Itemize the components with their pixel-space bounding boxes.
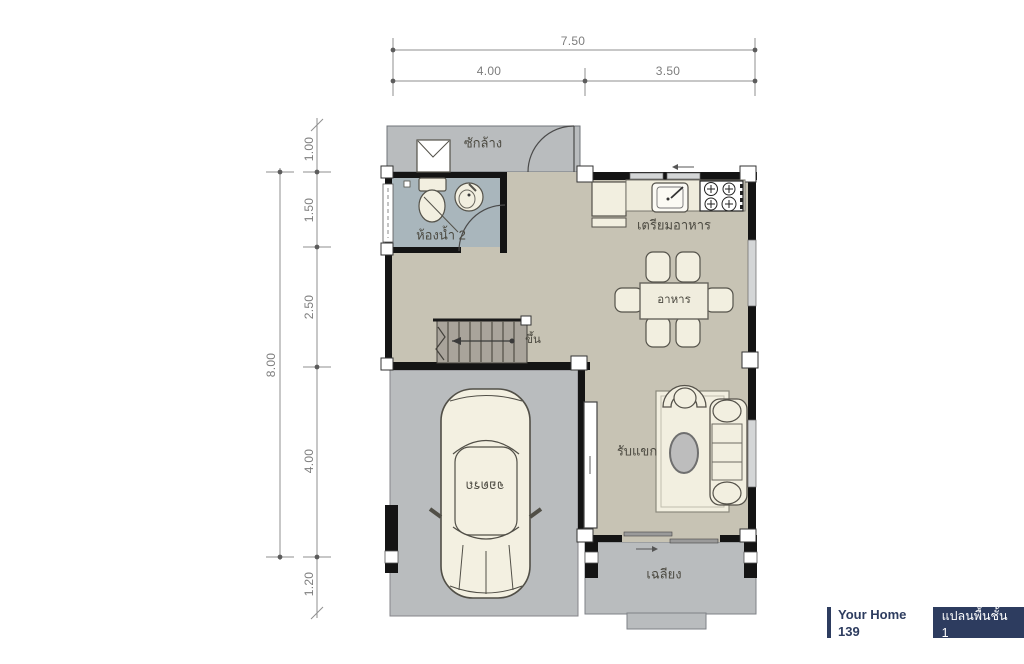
sliding-door-panel-icon: [670, 539, 718, 543]
chair-icon: [646, 317, 670, 347]
dim-left-seg-2: 1.50: [302, 198, 316, 223]
porch-window-right-icon: [744, 552, 757, 563]
kitchen-window-icon: [630, 173, 663, 179]
coffee-table-icon: [670, 433, 698, 473]
living-furniture: [656, 386, 747, 512]
sliding-door-panel-icon: [624, 532, 672, 536]
dim-left-total: 8.00: [264, 353, 278, 378]
dim-top-seg-1: 4.00: [477, 64, 502, 78]
dim-left-seg-5: 1.20: [302, 572, 316, 597]
brand-name: Your Home 139: [831, 604, 933, 642]
dining-window-icon: [748, 240, 756, 306]
brand-badge: Your Home 139 แปลนพื้นชั้น 1: [827, 607, 1024, 638]
room-label-porch: เฉลียง: [646, 564, 681, 585]
stairs-up-label: ขึ้น: [525, 331, 541, 349]
floor-plan-page: 7.50 4.00 3.50 1.00 1.50 2.50 4.00 1.20 …: [0, 0, 1024, 664]
room-label-living: รับแขก: [617, 441, 657, 462]
kitchen-window-icon: [667, 173, 700, 179]
dim-left-seg-4: 4.00: [302, 449, 316, 474]
carport-window-icon: [385, 551, 398, 563]
sink-icon: [652, 183, 688, 212]
room-label-laundry: ซักล้าง: [464, 133, 502, 154]
chair-icon: [705, 288, 733, 312]
chair-icon: [615, 288, 643, 312]
stove-icon: [700, 181, 743, 211]
room-label-bathroom: ห้องน้ำ 2: [416, 225, 466, 246]
chair-icon: [646, 252, 670, 282]
plan-caption: แปลนพื้นชั้น 1: [942, 606, 1013, 640]
dim-top-seg-2: 3.50: [656, 64, 681, 78]
porch-step: [627, 613, 706, 629]
living-window-icon: [748, 420, 756, 487]
porch-window-left-icon: [585, 552, 598, 563]
room-label-carport: จอดรถ: [466, 476, 505, 497]
room-label-dining: อาหาร: [657, 291, 691, 309]
sofa-icon: [710, 399, 747, 505]
dim-left-seg-1: 1.00: [302, 137, 316, 162]
dim-top-total: 7.50: [561, 34, 586, 48]
washbasin-icon: [455, 183, 483, 211]
chair-icon: [676, 252, 700, 282]
chair-icon: [676, 317, 700, 347]
stairs-icon: [433, 316, 531, 363]
fridge-icon: [592, 182, 626, 216]
dim-left-seg-3: 2.50: [302, 295, 316, 320]
room-label-kitchen: เตรียมอาหาร: [637, 215, 711, 236]
floor-plan-drawing: [0, 0, 1024, 664]
